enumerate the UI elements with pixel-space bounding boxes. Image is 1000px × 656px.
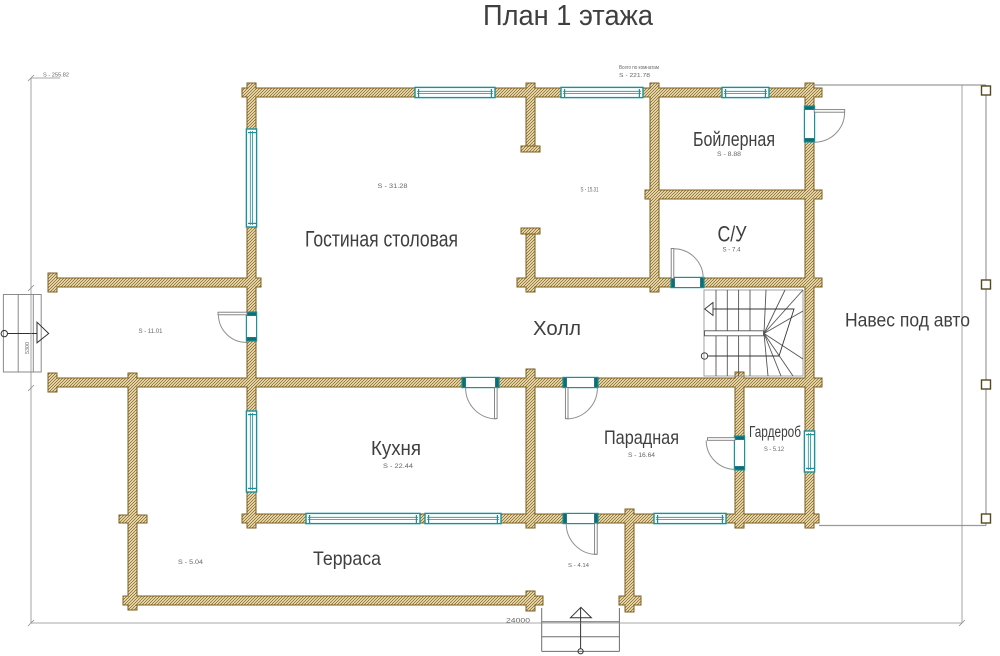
svg-text:S - 16.64: S - 16.64 [628, 452, 656, 459]
svg-text:Всего по комнатам: Всего по комнатам [619, 65, 659, 71]
svg-text:Терраса: Терраса [313, 548, 381, 570]
svg-text:План 1 этажа: План 1 этажа [483, 0, 654, 32]
svg-text:S - 5.12: S - 5.12 [764, 446, 785, 453]
svg-text:S - 22.44: S - 22.44 [383, 463, 414, 470]
svg-text:С/У: С/У [718, 222, 748, 247]
svg-text:Навес под авто: Навес под авто [845, 310, 970, 332]
svg-text:24000: 24000 [506, 617, 531, 624]
svg-text:S - 31.28: S - 31.28 [378, 183, 409, 190]
svg-text:Бойлерная: Бойлерная [693, 129, 775, 151]
svg-text:S - 11.01: S - 11.01 [139, 328, 164, 335]
svg-text:5300: 5300 [25, 342, 31, 354]
svg-text:Кухня: Кухня [371, 437, 421, 460]
svg-text:S - 8.88: S - 8.88 [717, 151, 742, 158]
svg-text:Парадная: Парадная [604, 427, 679, 449]
svg-text:S - 221.78: S - 221.78 [619, 73, 650, 79]
svg-text:S - 5.04: S - 5.04 [178, 559, 204, 566]
svg-text:Холл: Холл [533, 317, 581, 340]
svg-text:S - 15.31: S - 15.31 [581, 187, 599, 194]
svg-text:Гардероб: Гардероб [749, 424, 801, 441]
svg-text:S - 7.4: S - 7.4 [723, 247, 742, 254]
svg-text:S - 4.14: S - 4.14 [568, 563, 590, 569]
svg-text:Гостиная столовая: Гостиная столовая [305, 227, 458, 252]
svg-text:S - 255.82: S - 255.82 [43, 73, 69, 79]
